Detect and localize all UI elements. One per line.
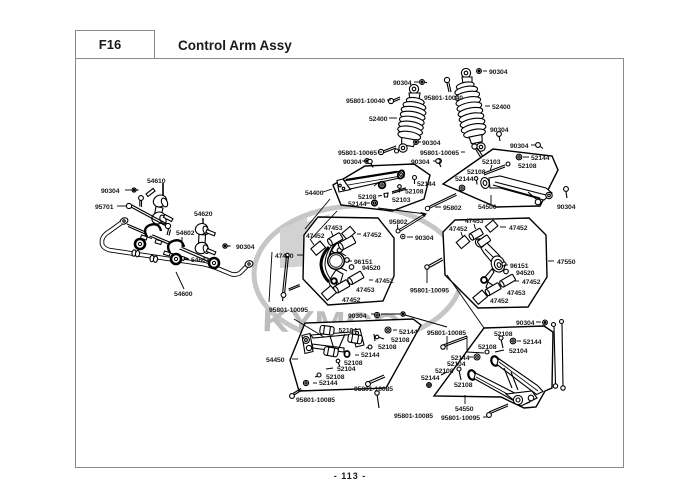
svg-text:90304: 90304 [415, 235, 434, 242]
svg-text:52108: 52108 [494, 331, 513, 338]
svg-text:94520: 94520 [362, 265, 381, 272]
svg-text:52104: 52104 [337, 366, 356, 373]
svg-text:90304: 90304 [236, 244, 255, 251]
svg-text:95801-10095: 95801-10095 [410, 288, 449, 295]
svg-text:54610: 54610 [147, 178, 166, 185]
svg-text:90304: 90304 [422, 140, 441, 147]
svg-text:52104: 52104 [509, 348, 528, 355]
svg-text:52108: 52108 [405, 189, 424, 196]
svg-text:90304: 90304 [516, 320, 535, 327]
svg-text:52144: 52144 [531, 155, 550, 162]
svg-text:95801-10085: 95801-10085 [354, 386, 393, 393]
svg-text:47452: 47452 [363, 232, 382, 239]
svg-text:52108: 52108 [378, 344, 397, 351]
svg-text:96151: 96151 [510, 263, 529, 270]
svg-text:95802: 95802 [389, 219, 408, 226]
svg-text:52108: 52108 [391, 337, 410, 344]
svg-text:47452: 47452 [449, 226, 468, 233]
svg-text:52144: 52144 [455, 176, 474, 183]
svg-text:Control Arm Assy: Control Arm Assy [178, 38, 292, 53]
svg-text:47550: 47550 [557, 259, 576, 266]
svg-text:95801-10085: 95801-10085 [427, 330, 466, 337]
svg-text:47452: 47452 [490, 298, 509, 305]
svg-text:54601: 54601 [191, 257, 210, 264]
svg-text:90304: 90304 [348, 313, 367, 320]
svg-text:52400: 52400 [369, 116, 388, 123]
svg-text:52108: 52108 [478, 344, 497, 351]
svg-text:95801-10040: 95801-10040 [424, 95, 463, 102]
svg-text:54450: 54450 [266, 357, 285, 364]
svg-text:52144: 52144 [399, 329, 418, 336]
svg-text:90304: 90304 [393, 80, 412, 87]
svg-text:52144: 52144 [523, 339, 542, 346]
svg-text:95801-10095: 95801-10095 [269, 307, 308, 314]
svg-text:90304: 90304 [490, 127, 509, 134]
svg-text:95801-10065: 95801-10065 [338, 150, 377, 157]
svg-text:52400: 52400 [492, 104, 511, 111]
svg-text:47452: 47452 [342, 297, 361, 304]
svg-text:54550: 54550 [455, 406, 474, 413]
svg-text:94520: 94520 [516, 270, 535, 277]
svg-text:52144: 52144 [348, 201, 367, 208]
svg-text:52144: 52144 [421, 375, 440, 382]
svg-text:54602: 54602 [176, 230, 195, 237]
svg-text:52103: 52103 [392, 197, 411, 204]
svg-text:52144: 52144 [417, 181, 436, 188]
svg-text:54400: 54400 [305, 190, 324, 197]
svg-text:90304: 90304 [101, 188, 120, 195]
svg-text:52108: 52108 [435, 368, 454, 375]
svg-text:90304: 90304 [510, 143, 529, 150]
svg-text:90304: 90304 [343, 159, 362, 166]
svg-text:90304: 90304 [557, 204, 576, 211]
svg-text:52108: 52108 [518, 163, 537, 170]
svg-text:47453: 47453 [356, 287, 375, 294]
svg-text:47453: 47453 [507, 290, 526, 297]
svg-text:52108: 52108 [454, 382, 473, 389]
svg-text:52144: 52144 [319, 380, 338, 387]
svg-text:54500: 54500 [478, 204, 497, 211]
svg-text:54600: 54600 [174, 291, 193, 298]
svg-text:52104: 52104 [447, 361, 466, 368]
svg-text:47450: 47450 [275, 253, 294, 260]
svg-text:47453: 47453 [324, 225, 343, 232]
svg-text:47452: 47452 [509, 225, 528, 232]
svg-text:47452: 47452 [522, 279, 541, 286]
svg-text:90304: 90304 [489, 69, 508, 76]
svg-text:47452: 47452 [375, 278, 394, 285]
svg-text:52144: 52144 [361, 352, 380, 359]
svg-text:52104: 52104 [339, 328, 358, 335]
svg-text:52108: 52108 [467, 169, 486, 176]
svg-text:95801-10095: 95801-10095 [441, 415, 480, 422]
svg-text:95801-10085: 95801-10085 [394, 413, 433, 420]
svg-text:95701: 95701 [95, 204, 114, 211]
svg-text:52108: 52108 [358, 194, 377, 201]
svg-text:54620: 54620 [194, 211, 213, 218]
svg-text:95801-10065: 95801-10065 [420, 150, 459, 157]
svg-text:52103: 52103 [482, 159, 501, 166]
svg-text:95802: 95802 [443, 205, 462, 212]
svg-text:95801-10085: 95801-10085 [296, 397, 335, 404]
svg-text:95801-10040: 95801-10040 [346, 98, 385, 105]
svg-text:- 113 -: - 113 - [334, 471, 367, 481]
svg-text:F16: F16 [99, 37, 121, 52]
